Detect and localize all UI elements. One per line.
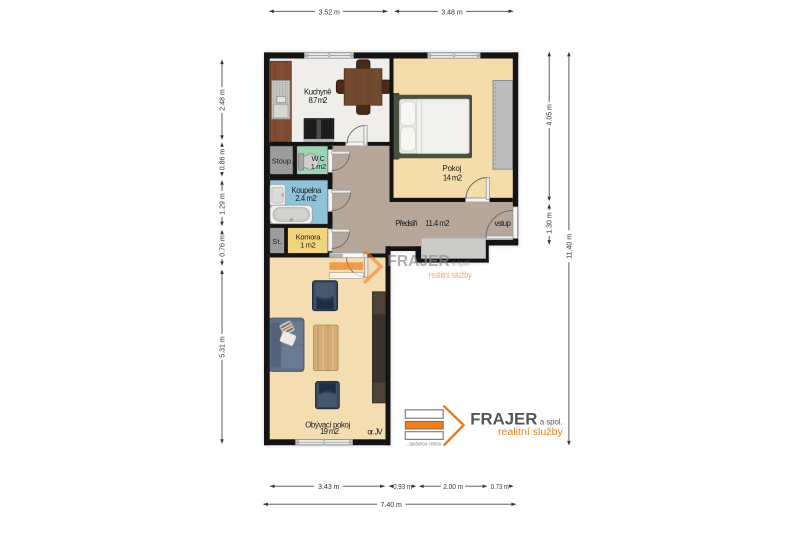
- svg-text:1.29 m: 1.29 m: [220, 193, 227, 215]
- svg-text:11.4 m2: 11.4 m2: [425, 219, 449, 228]
- svg-text:realitní služby: realitní služby: [429, 270, 472, 280]
- svg-text:19 m2: 19 m2: [320, 427, 339, 436]
- svg-text:7.40 m: 7.40 m: [380, 502, 402, 509]
- svg-text:1.30 m: 1.30 m: [547, 212, 554, 234]
- svg-text:Pokoj: Pokoj: [443, 164, 462, 173]
- svg-text:1 m2: 1 m2: [311, 162, 327, 171]
- svg-text:0.73 m: 0.73 m: [491, 484, 509, 491]
- svg-text:14 m2: 14 m2: [443, 174, 462, 183]
- svg-text:0.76 m: 0.76 m: [220, 235, 227, 257]
- svg-text:3.48 m: 3.48 m: [441, 9, 463, 16]
- svg-text:5.31 m: 5.31 m: [220, 336, 227, 358]
- svg-text:3.52 m: 3.52 m: [318, 9, 340, 16]
- svg-text:vstup: vstup: [494, 219, 511, 228]
- svg-text:or. JV: or. JV: [367, 427, 383, 436]
- svg-text:Předsíň: Předsíň: [395, 219, 417, 228]
- svg-text:0.93 m: 0.93 m: [393, 484, 412, 491]
- svg-text:11.40 m: 11.40 m: [566, 234, 573, 259]
- svg-text:3.43 m: 3.43 m: [318, 484, 340, 491]
- svg-text:FRAJER: FRAJER: [387, 253, 449, 270]
- svg-text:0.86 m: 0.86 m: [220, 149, 227, 171]
- svg-text:realitní služby: realitní služby: [498, 427, 563, 438]
- svg-text:a spol.: a spol.: [540, 417, 563, 426]
- svg-text:...správnou cestou: ...správnou cestou: [406, 441, 442, 447]
- svg-text:a spol.: a spol.: [452, 259, 471, 268]
- svg-text:8.7 m2: 8.7 m2: [309, 96, 328, 105]
- svg-text:St.: St.: [272, 237, 282, 246]
- svg-text:2.48 m: 2.48 m: [220, 89, 227, 111]
- svg-text:2.00 m: 2.00 m: [443, 484, 463, 491]
- svg-text:1 m2: 1 m2: [300, 241, 316, 250]
- svg-text:Stoup.: Stoup.: [272, 156, 293, 165]
- svg-text:2.4 m2: 2.4 m2: [295, 194, 317, 203]
- svg-text:FRAJER: FRAJER: [470, 410, 537, 429]
- svg-text:4.05 m: 4.05 m: [547, 104, 554, 126]
